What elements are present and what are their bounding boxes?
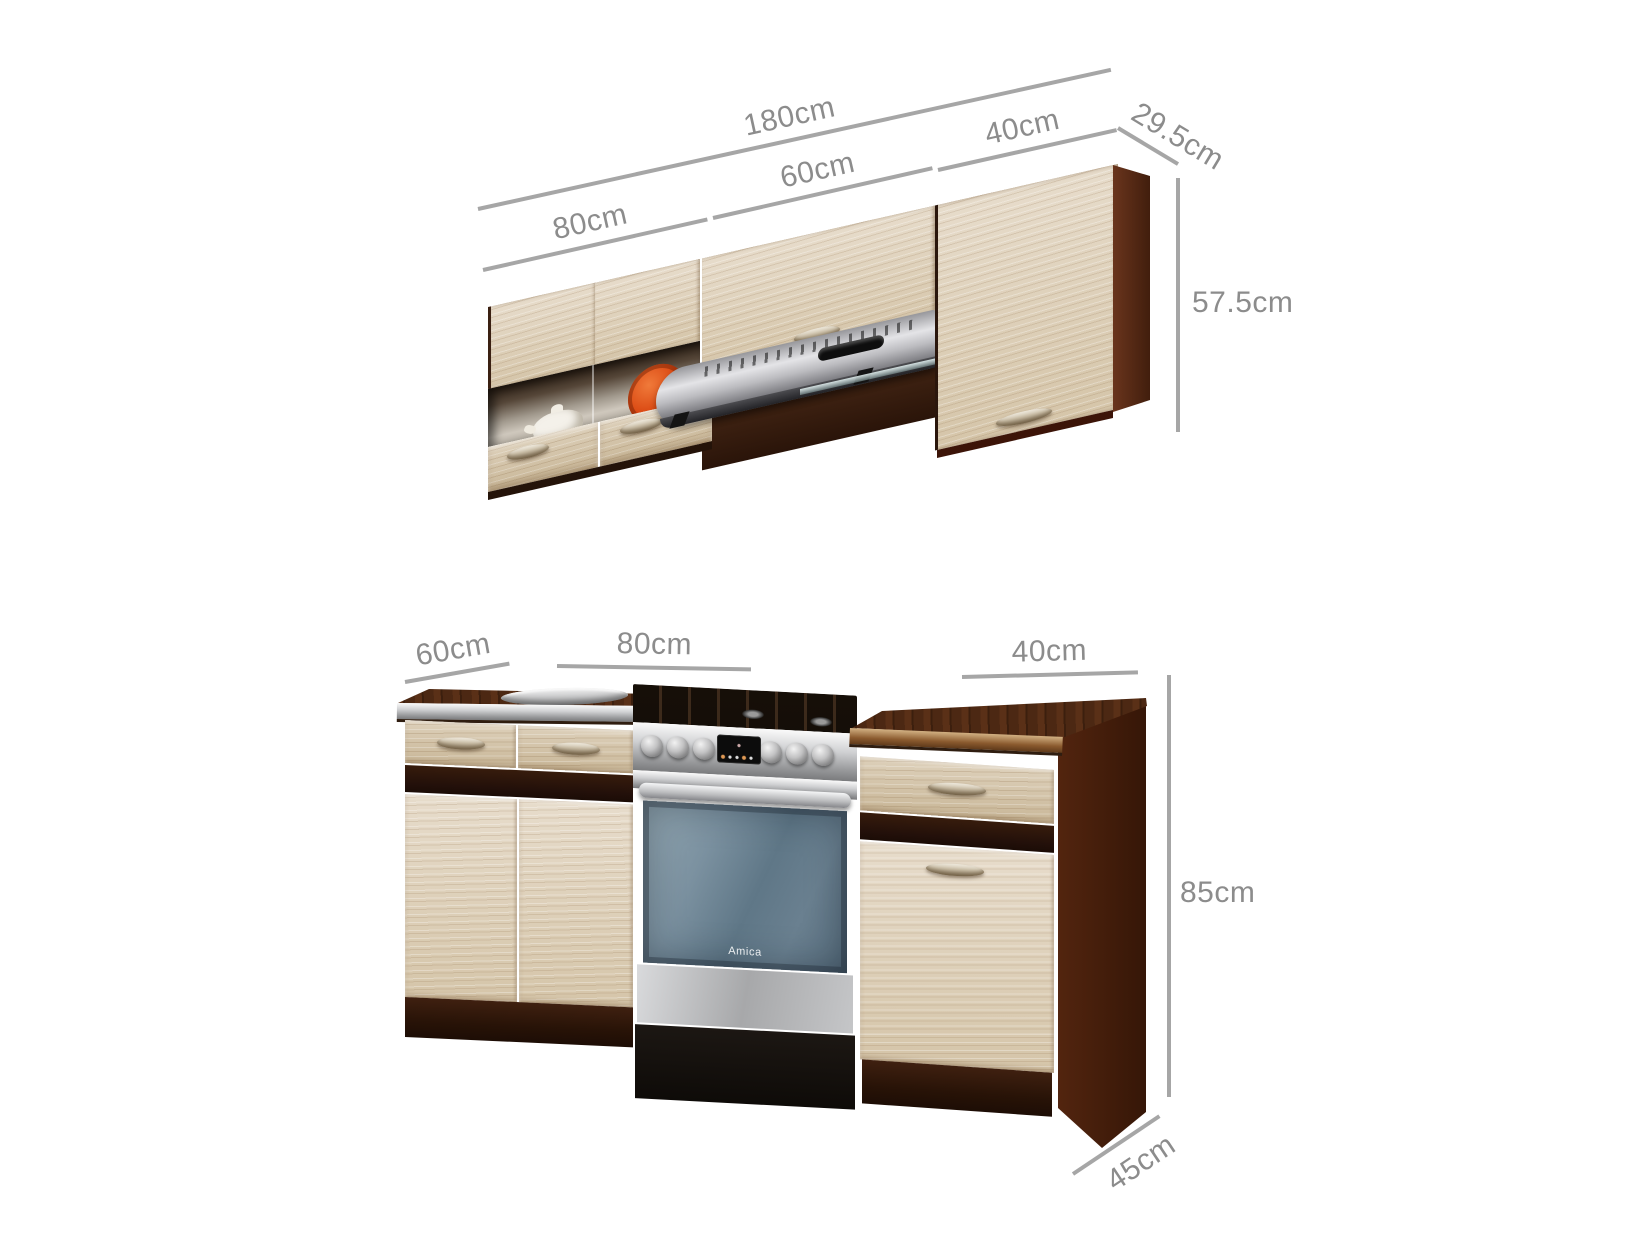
- dimension-line-upper-height: [1176, 178, 1180, 432]
- drawer-handle: [437, 736, 485, 750]
- oven-glass-door: Amica: [643, 801, 847, 974]
- cabinet-door: [519, 799, 633, 1007]
- oven-knob: [641, 734, 663, 757]
- oven-knob: [667, 736, 689, 759]
- kitchen-dimension-diagram: 180cm 80cm 60cm 40cm 29.5cm 57.5cm: [0, 0, 1650, 1237]
- dim-label-upper-height: 57.5cm: [1192, 286, 1293, 320]
- wall-cabinet-side-panel: [1112, 160, 1152, 415]
- cabinet-door: [405, 794, 517, 1002]
- oven-brand-label: Amica: [643, 941, 847, 964]
- cooker-storage-drawer: [637, 964, 853, 1033]
- glass-pane-divider: [592, 365, 594, 423]
- drawer-handle: [620, 415, 662, 437]
- oven-knob: [786, 742, 808, 765]
- dimension-line-lower-80: 80cm: [557, 664, 751, 671]
- cabinet-door: [860, 841, 1054, 1073]
- drawer-front: [405, 720, 516, 768]
- oven-knob: [812, 743, 834, 766]
- drawer-front: [518, 725, 633, 773]
- dim-label-upper-depth: 29.5cm: [1125, 96, 1229, 177]
- base-cabinet-40: [856, 752, 1060, 1166]
- oven-knob: [760, 741, 782, 764]
- dimension-line-upper-60: 60cm: [713, 166, 933, 220]
- base-cabinet-60: [405, 720, 635, 1070]
- drawer-handle: [928, 781, 986, 797]
- dimension-line-lower-60: 60cm: [405, 662, 510, 684]
- oven-knob: [693, 737, 715, 760]
- drawer-handle: [552, 742, 600, 756]
- dimension-line-upper-depth: 29.5cm: [1117, 126, 1179, 165]
- dimension-line-lower-height: [1167, 675, 1171, 1097]
- dim-label-lower-80: 80cm: [616, 627, 692, 662]
- dim-label-lower-60: 60cm: [413, 627, 493, 674]
- dim-label-upper-40: 40cm: [982, 103, 1063, 153]
- dim-label-total-width: 180cm: [741, 90, 839, 143]
- cooker-base: [635, 1024, 855, 1110]
- dim-label-upper-80: 80cm: [550, 197, 631, 247]
- dim-label-lower-40: 40cm: [1011, 634, 1087, 670]
- dimension-line-lower-40: 40cm: [962, 670, 1138, 679]
- cooker: Amica: [633, 684, 857, 1114]
- drawer-handle: [507, 441, 549, 463]
- dim-label-upper-60: 60cm: [777, 146, 858, 196]
- oven-display: [717, 734, 761, 764]
- wall-cabinet-40-door: [935, 164, 1118, 451]
- dim-label-lower-height: 85cm: [1180, 876, 1255, 910]
- base-cabinet-side-panel: [1056, 696, 1148, 1152]
- dimension-line-upper-40: 40cm: [938, 128, 1117, 172]
- door-handle: [926, 862, 984, 878]
